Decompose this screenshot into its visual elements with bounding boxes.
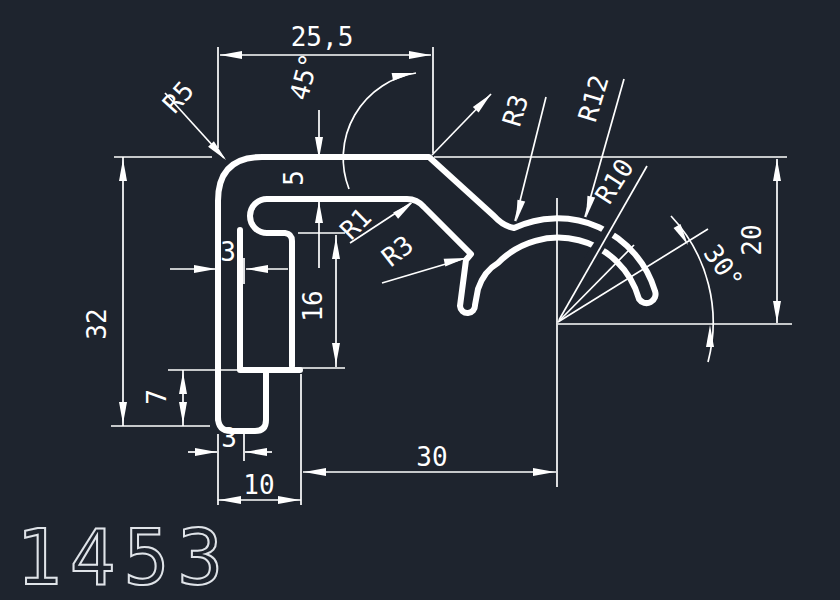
dim-top-wall: 3	[220, 237, 236, 267]
cad-drawing-canvas: 25,5 32 3 5 16 7 3 10 30 20 45° 30° R5 R…	[0, 0, 840, 600]
dim-web-height: 16	[298, 290, 328, 321]
dim-overall-height: 32	[82, 308, 112, 339]
radius-label-r10: R10	[589, 153, 640, 209]
profile-main-path	[218, 157, 656, 419]
angle-slope-label: 45°	[284, 50, 325, 103]
dim-center-offset: 30	[416, 442, 447, 472]
radius-label-r12: R12	[572, 72, 614, 126]
dim-flange-thickness: 5	[279, 170, 309, 186]
part-number: 1453	[16, 513, 231, 600]
dimension-lines	[111, 47, 792, 505]
dim-right-height: 20	[737, 224, 767, 255]
dim-foot-height: 7	[142, 389, 172, 405]
radius-label-r5: R5	[157, 75, 200, 118]
dim-top-width: 25,5	[291, 22, 354, 52]
radius-label-r1: R1	[334, 202, 377, 245]
dimension-labels: 25,5 32 3 5 16 7 3 10 30 20 45° 30° R5 R…	[82, 22, 767, 500]
cad-viewport: 25,5 32 3 5 16 7 3 10 30 20 45° 30° R5 R…	[0, 0, 840, 600]
dim-tip-width: 3	[221, 423, 237, 453]
radius-label-r3-notch: R3	[376, 229, 419, 272]
radius-label-r3-hook: R3	[496, 91, 534, 130]
dim-foot-width: 10	[243, 470, 274, 500]
